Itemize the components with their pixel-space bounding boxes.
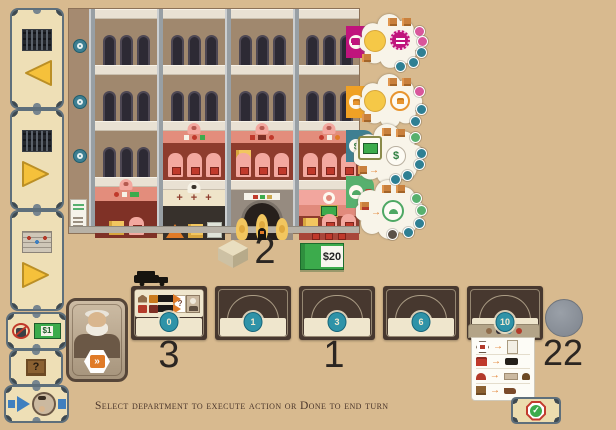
floor-2-badge (73, 149, 87, 163)
boot-icon (504, 388, 516, 394)
founder-portrait-icon (186, 295, 200, 313)
window-floor (95, 9, 157, 65)
window (273, 91, 286, 121)
arrow-right-icon: → (371, 208, 381, 218)
sidebar-card-factory-2[interactable] (10, 109, 64, 210)
shop-sign-icon (256, 123, 269, 134)
department-card-3[interactable]: 3 (299, 286, 375, 340)
crate-icon (388, 78, 397, 86)
teal-counter (416, 47, 427, 58)
arrow-right-icon (20, 260, 54, 290)
window (137, 147, 150, 177)
department-card-1[interactable]: ? 0 (131, 286, 207, 340)
sidebar-card-wage[interactable]: $1 (6, 312, 67, 350)
crate-icon (396, 129, 405, 137)
crate-icon (402, 18, 411, 26)
market-stall (303, 153, 318, 177)
window (306, 91, 319, 121)
selected-banknote-icon (358, 136, 382, 160)
status-message: Select department to execute action or D… (95, 400, 389, 412)
card-icon (507, 340, 518, 354)
house-icon (138, 295, 147, 303)
booth-icon (149, 305, 158, 313)
department-floor2-col2[interactable] (163, 121, 225, 180)
crate-icon (362, 114, 371, 122)
crate-icon (388, 18, 397, 26)
teal-counter (416, 104, 427, 115)
reference-row: → (476, 341, 530, 355)
player-portrait-token (32, 392, 56, 416)
window (103, 91, 116, 121)
sidebar-card-factory-3[interactable] (10, 210, 64, 311)
house-badge-icon (476, 341, 489, 353)
player-color-marker (58, 399, 66, 409)
done-button[interactable]: ✓ (511, 397, 561, 424)
department-count-left: 3 (147, 334, 191, 377)
window (137, 35, 150, 65)
one-dollar-bill-icon: $1 (34, 323, 61, 339)
window (273, 35, 286, 65)
window (188, 91, 201, 121)
factory-icon (23, 131, 51, 151)
sidebar-card-factory-1[interactable] (10, 8, 64, 109)
truck-icon (133, 270, 173, 286)
department-level-badge: 0 (160, 312, 179, 332)
factory-icon (23, 30, 51, 50)
market-stall (206, 153, 221, 177)
market-stall (236, 153, 251, 177)
disc-count: 22 (541, 332, 585, 374)
arrow-right-icon: → (493, 342, 503, 352)
market-stall (255, 153, 270, 177)
tree-icon (276, 218, 288, 240)
teal-counter (410, 116, 421, 127)
department-level-badge: 6 (412, 312, 431, 332)
arrow-right-icon: → (490, 386, 500, 396)
window (306, 35, 319, 65)
crate-icon (360, 202, 369, 210)
window (103, 35, 116, 65)
department-count-middle: 1 (312, 334, 356, 377)
green-counter (416, 205, 427, 216)
shop-icon (476, 357, 487, 366)
window-floor (95, 65, 157, 121)
action-tile-beds[interactable] (360, 14, 424, 70)
plus-sign: + (205, 192, 211, 204)
plus-sign: + (176, 192, 182, 204)
tree-icon (236, 218, 248, 240)
window (137, 91, 150, 121)
conveyor-arrows-icon (158, 295, 174, 312)
stand-icon (149, 295, 158, 303)
sofa-icon (505, 358, 518, 365)
dome-icon (476, 373, 486, 380)
sidebar-card-mystery-crate[interactable]: ? (9, 349, 63, 386)
bed-action-icon (390, 30, 410, 50)
arrow-right-icon (20, 159, 54, 189)
no-worker-icon (13, 324, 29, 338)
dark-counter (387, 229, 398, 240)
window-floor (231, 9, 293, 65)
reference-row: → (476, 355, 530, 369)
crate-icon (362, 54, 371, 62)
crate-icon (396, 185, 405, 193)
arrow-left-icon (20, 58, 54, 88)
awning-action-icon (382, 200, 404, 222)
action-tile-money[interactable]: $ → (354, 124, 426, 184)
teal-counter (414, 218, 425, 229)
yellow-disc-icon (364, 30, 386, 52)
market-stall (168, 153, 183, 177)
stop-octagon-icon: ✓ (526, 401, 546, 421)
teal-counter (408, 57, 419, 68)
department-floor2-col3[interactable] (231, 121, 293, 180)
department-card-4[interactable]: 6 (383, 286, 459, 340)
factory-icon (23, 232, 51, 252)
money-bill: $20 (300, 243, 344, 270)
flower-icon (114, 192, 119, 197)
window (103, 147, 116, 177)
teal-counter (403, 227, 414, 238)
shop-sign-icon (323, 123, 336, 134)
window (239, 91, 252, 121)
window (171, 35, 184, 65)
department-level-badge: 10 (496, 312, 515, 332)
department-card-2[interactable]: 1 (215, 286, 291, 340)
yellow-disc-icon (364, 90, 386, 112)
department-store-building: + + + (68, 8, 360, 234)
window-floor (163, 9, 225, 65)
teal-counter (390, 174, 401, 185)
shop-icon (138, 305, 147, 313)
reference-row: → (476, 370, 530, 384)
window (120, 147, 133, 177)
action-tile-hats[interactable]: → (356, 180, 426, 240)
teal-counter (402, 170, 413, 181)
floor-4-badge (73, 39, 87, 53)
window (120, 35, 133, 65)
game-board: $1 ? (0, 0, 616, 430)
goods-icons (138, 295, 158, 313)
shop-sign-icon (188, 123, 201, 134)
window (256, 35, 269, 65)
arrow-right-icon: → (490, 371, 500, 381)
green-counter (411, 193, 422, 204)
floor-3-badge (73, 95, 87, 109)
entrance-sign (244, 193, 280, 200)
window (188, 35, 201, 65)
visitor-figure (258, 228, 266, 240)
window-floor (163, 65, 225, 121)
window (171, 91, 184, 121)
sidewalk (69, 226, 359, 233)
money-amount: $20 (321, 246, 343, 267)
action-tile-furniture[interactable] (360, 74, 424, 130)
arrow-right-icon: → (491, 357, 501, 367)
wage-value: $1 (41, 326, 54, 336)
pink-counter (414, 86, 425, 97)
market-stall (187, 153, 202, 177)
sidebar-card-turn-order[interactable] (4, 385, 69, 423)
market-stall (322, 153, 337, 177)
banknote-icon (130, 192, 139, 197)
founder-card[interactable]: » (66, 298, 128, 382)
crate-icon (402, 78, 411, 86)
window (239, 35, 252, 65)
crate-icon (358, 166, 367, 174)
market-stall (274, 153, 289, 177)
department-level-badge: 1 (244, 312, 263, 332)
mound-icon (522, 373, 530, 380)
shop-sign-icon (120, 179, 133, 190)
plus-sign: + (191, 192, 197, 204)
window-floor (231, 65, 293, 121)
window (120, 91, 133, 121)
window (323, 91, 336, 121)
window-floor (95, 121, 157, 177)
green-counter (410, 132, 421, 143)
pink-counter (417, 36, 428, 47)
check-icon: ✓ (530, 405, 542, 417)
wooden-cube-icon (216, 238, 250, 270)
store-entrance[interactable] (231, 180, 293, 240)
crate-icon (382, 185, 391, 193)
mystery-crate-icon: ? (26, 359, 46, 376)
teal-counter (395, 61, 406, 72)
reference-panel: → → → → (471, 337, 535, 401)
arrow-right-icon (8, 400, 15, 408)
window (323, 35, 336, 65)
reference-row: → (476, 384, 530, 397)
window (205, 91, 218, 121)
crate-icon (382, 128, 391, 136)
dollar-action-icon: $ (386, 146, 406, 166)
teal-counter (414, 159, 425, 170)
arrow-right-icon: → (369, 166, 379, 176)
armchair-action-icon (390, 91, 410, 111)
window (256, 91, 269, 121)
crate-icon (476, 386, 486, 395)
price-strip (299, 232, 359, 240)
pig-sign-icon (323, 192, 335, 204)
sign-icon (122, 192, 127, 197)
hat-sign-icon (188, 182, 201, 193)
window (205, 35, 218, 65)
plank-icon (504, 373, 518, 380)
teal-counter (416, 148, 427, 159)
department-level-badge: 3 (328, 312, 347, 332)
